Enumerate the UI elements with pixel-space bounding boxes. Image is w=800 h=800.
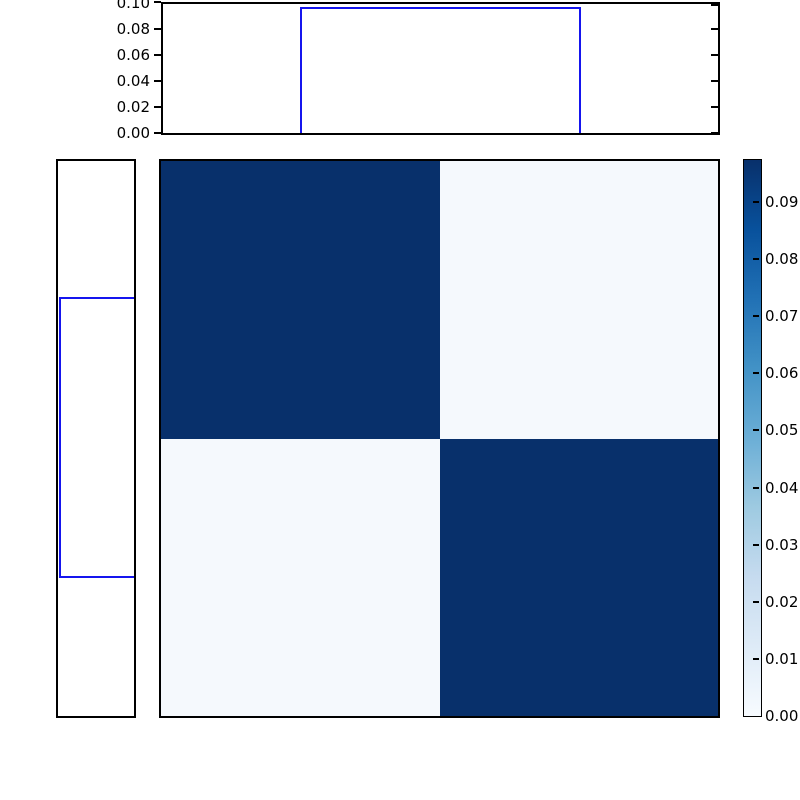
ytick-mark-right — [711, 80, 718, 82]
ytick-mark-right — [711, 106, 718, 108]
ytick-label: 0.02 — [106, 99, 150, 116]
colorbar-tick-label: 0.08 — [765, 251, 798, 268]
colorbar-tick-label: 0.07 — [765, 308, 798, 325]
colorbar-tick-label: 0.04 — [765, 480, 798, 497]
ytick-mark-right — [711, 132, 718, 134]
top-histogram-axes — [161, 2, 720, 135]
ytick-mark — [154, 80, 161, 82]
colorbar-tick-mark — [753, 544, 759, 546]
colorbar-tick-mark — [753, 429, 759, 431]
colorbar-tick-label: 0.05 — [765, 422, 798, 439]
colorbar-tick-label: 0.00 — [765, 708, 798, 725]
left-histogram-bar-outline — [59, 297, 134, 578]
colorbar-tick-mark — [753, 487, 759, 489]
colorbar-tick-label: 0.02 — [765, 594, 798, 611]
ytick-mark — [154, 106, 161, 108]
ytick-label: 0.10 — [106, 0, 150, 11]
ytick-mark-right — [711, 28, 718, 30]
heatmap-cell-r1c1 — [440, 439, 719, 717]
colorbar-tick-label: 0.03 — [765, 537, 798, 554]
ytick-label: 0.06 — [106, 47, 150, 64]
heatmap-cell-r0c1 — [440, 161, 719, 439]
ytick-label: 0.00 — [106, 125, 150, 142]
colorbar-tick-mark — [753, 315, 759, 317]
colorbar-tick-mark — [753, 258, 759, 260]
ytick-mark — [154, 54, 161, 56]
ytick-mark — [154, 1, 161, 3]
ytick-label: 0.08 — [106, 21, 150, 38]
heatmap-cell-r0c0 — [161, 161, 440, 439]
ytick-mark-right — [711, 54, 718, 56]
ytick-mark — [154, 28, 161, 30]
left-histogram-axes — [56, 159, 136, 718]
colorbar — [743, 159, 762, 717]
colorbar-tick-label: 0.01 — [765, 651, 798, 668]
colorbar-tick-label: 0.09 — [765, 194, 798, 211]
heatmap-axes — [159, 159, 720, 718]
ytick-mark-right — [711, 4, 718, 6]
colorbar-gradient — [744, 160, 761, 716]
colorbar-tick-mark — [753, 658, 759, 660]
figure-canvas: 0.00 0.02 0.04 0.06 0.08 0.10 0.00 0.01 … — [0, 0, 800, 800]
colorbar-tick-mark — [753, 201, 759, 203]
colorbar-tick-mark — [753, 372, 759, 374]
top-histogram-bar-outline — [300, 7, 581, 133]
colorbar-tick-label: 0.06 — [765, 365, 798, 382]
colorbar-tick-mark — [753, 601, 759, 603]
ytick-mark — [154, 132, 161, 134]
ytick-label: 0.04 — [106, 73, 150, 90]
heatmap-cell-r1c0 — [161, 439, 440, 717]
